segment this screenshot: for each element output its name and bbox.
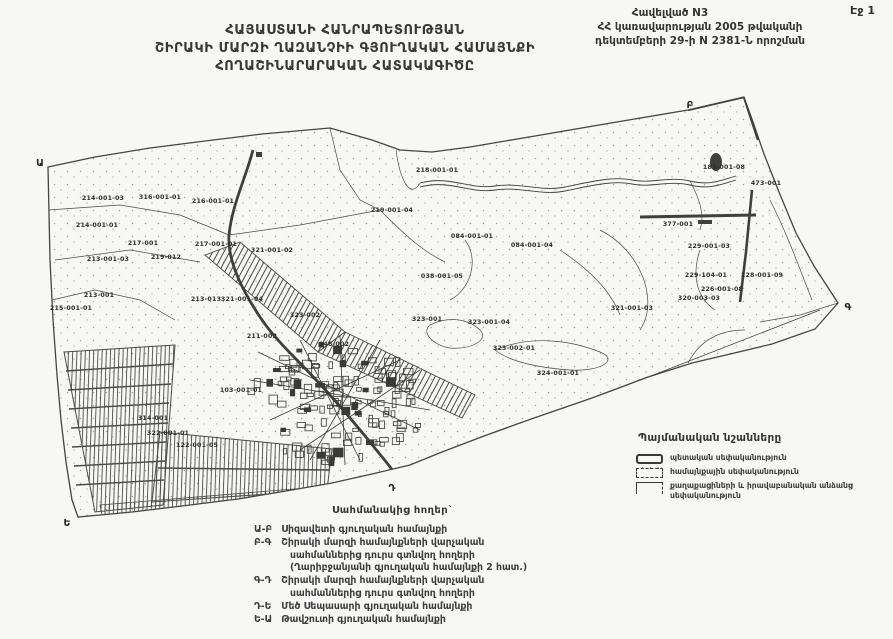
scanned-map-page: Էջ 1 Հավելված N3 ՀՀ կառավարության 2005 թ… (0, 0, 893, 639)
parcel-label: 323-001 (412, 316, 442, 323)
parcel-label: 038-001-05 (421, 273, 463, 280)
adjacent-lands-rows: Ա-Բ Սիզավետի գյուղական համայնքիԲ-Գ Շիրակ… (254, 524, 584, 626)
settlement-parcel (363, 388, 368, 392)
adjacent-land-entry: սահմաններից դուրս գտնվող հողերի (254, 588, 584, 601)
parcel-label: 219-012 (151, 254, 181, 261)
adjacent-land-entry: Ե-Ա Թավշուտի գյուղական համայնքի (254, 614, 584, 627)
parcel-label: 214-001-03 (82, 195, 124, 202)
map-legend: Պայմանական նշանները պետական սեփականությո… (622, 432, 884, 503)
legend-items: պետական սեփականությունհամայնքային սեփակա… (622, 453, 884, 500)
parcel-label: 217-001 (128, 240, 158, 247)
adjacent-land-entry: Ա-Բ Սիզավետի գյուղական համայնքի (254, 524, 584, 537)
parcel-label: 320-003-03 (678, 295, 720, 302)
boundary-corner-marker: Ա (36, 158, 44, 169)
settlement-parcel (304, 408, 310, 412)
parcel-label: 084-001-01 (451, 233, 493, 240)
settlement-parcel (329, 457, 334, 466)
legend-item: համայնքային սեփականություն (636, 467, 884, 478)
settlement-parcel (386, 378, 395, 387)
parcel-label: 228-001-09 (741, 272, 783, 279)
settlement-parcel (267, 379, 273, 386)
parcel-label: 229-001-03 (688, 243, 730, 250)
border-segment-code: Բ-Գ (254, 537, 278, 550)
adjacent-land-entry: Բ-Գ Շիրակի մարզի համայնքների վարչական (254, 537, 584, 550)
state-ownership-symbol (636, 454, 663, 464)
parcel-label: 213-013 (191, 296, 221, 303)
parcel-label: 216-001-01 (192, 198, 234, 205)
legend-item: պետական սեփականություն (636, 453, 884, 464)
private-ownership-symbol (636, 482, 663, 494)
settlement-parcel (362, 361, 369, 365)
settlement-parcel (342, 407, 350, 414)
parcel-label: 211-002 (247, 333, 277, 340)
parcel-label: 048-002 (319, 341, 349, 348)
border-segment-code: Ե-Ա (254, 614, 278, 627)
parcel-label: 122-001-05 (176, 442, 218, 449)
parcel-label: 473-001 (751, 180, 781, 187)
legend-title: Պայմանական նշանները (638, 432, 884, 444)
settlement-parcel (294, 380, 301, 389)
parcel-label: 215-001-01 (50, 305, 92, 312)
parcel-label: 226-001-08 (701, 286, 743, 293)
legend-item: քաղաքացիների և իրավաբանական անձանցսեփակա… (636, 481, 884, 500)
parcel-label: 316-001-01 (139, 194, 181, 201)
parcel-label: 321-001-04 (221, 296, 264, 303)
legend-item-label: քաղաքացիների և իրավաբանական անձանցսեփակա… (670, 481, 853, 500)
parcel-label: 322-001-01 (147, 430, 189, 437)
parcel-label: 183-001-08 (703, 164, 745, 171)
parcel-label: 218-001-01 (416, 167, 458, 174)
settlement-parcel (290, 389, 294, 396)
border-segment-code: Դ-Ե (254, 601, 278, 614)
adjacent-lands-title: Սահմանակից հողեր` (332, 505, 584, 516)
boundary-corner-marker: Դ (389, 483, 396, 494)
parcel-label: 229-104-01 (685, 272, 727, 279)
parcel-label: 219-001-04 (371, 207, 414, 214)
adjacent-land-entry: Դ-Ե Մեծ Սեպասարի գյուղական համայնքի (254, 601, 584, 614)
parcel-label: 323-002-01 (493, 345, 535, 352)
border-segment-code: Ա-Բ (254, 524, 278, 537)
parcel-label: 214-001-01 (76, 222, 118, 229)
adjacent-land-entry: սահմաններից դուրս գտնվող հողերի (254, 550, 584, 563)
parcel-label: 103-001-01 (220, 387, 262, 394)
settlement-parcel (317, 452, 325, 458)
parcel-label: 321-001-03 (611, 305, 653, 312)
parcel-label: 314-001 (138, 415, 168, 422)
parcel-label: 084-001-04 (511, 242, 554, 249)
boundary-corner-marker: Բ (687, 100, 694, 111)
parcel-label: 324-001-01 (537, 370, 579, 377)
adjacent-land-entry: Գ-Դ Շիրակի մարզի համայնքների վարչական (254, 575, 584, 588)
parcel-label: 321-001-02 (251, 247, 293, 254)
settlement-parcel (340, 361, 346, 367)
settlement-parcel (297, 349, 302, 352)
parcel-label: 377-001 (663, 221, 693, 228)
parcel-label: 213-001-03 (87, 256, 129, 263)
parcel-label: 323-002 (290, 312, 320, 319)
community-ownership-symbol (636, 468, 663, 478)
parcel-label: 213-001 (84, 292, 114, 299)
boundary-corner-marker: Ե (64, 518, 71, 529)
parcel-label: 323-001-04 (468, 319, 511, 326)
legend-item-label: համայնքային սեփականություն (670, 467, 799, 477)
parcel-label: 217-001-01 (195, 241, 237, 248)
settlement-parcel (316, 384, 325, 388)
legend-item-label: պետական սեփականություն (670, 453, 787, 463)
adjacent-land-entry: (Ղարիբջանյանի գյուղական համայնքի 2 հատ.) (254, 562, 584, 575)
border-segment-code: Գ-Դ (254, 575, 278, 588)
boundary-corner-marker: Գ (845, 302, 852, 313)
settlement-parcel (281, 428, 286, 432)
adjacent-lands: Սահմանակից հողեր` Ա-Բ Սիզավետի գյուղական… (254, 505, 584, 626)
